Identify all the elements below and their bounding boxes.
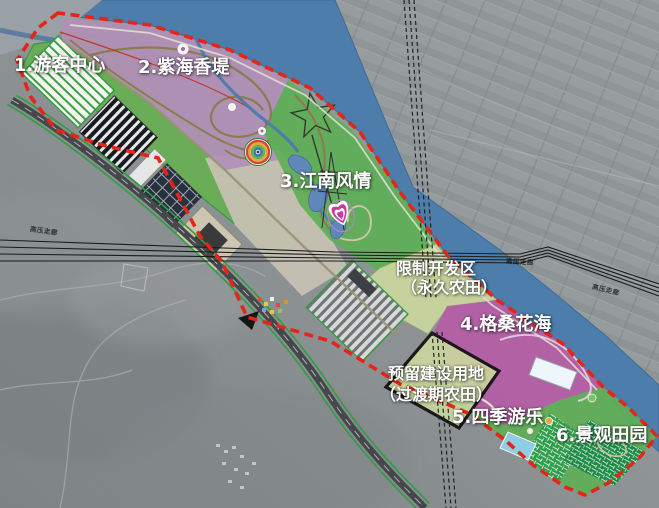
rainbow-spiral-feature: [245, 139, 272, 166]
map-canvas: [0, 0, 659, 508]
master-plan-map: 1.游客中心 2.紫海香堤 3.江南风情 限制开发区 （永久农田） 4.格桑花海…: [0, 0, 659, 508]
